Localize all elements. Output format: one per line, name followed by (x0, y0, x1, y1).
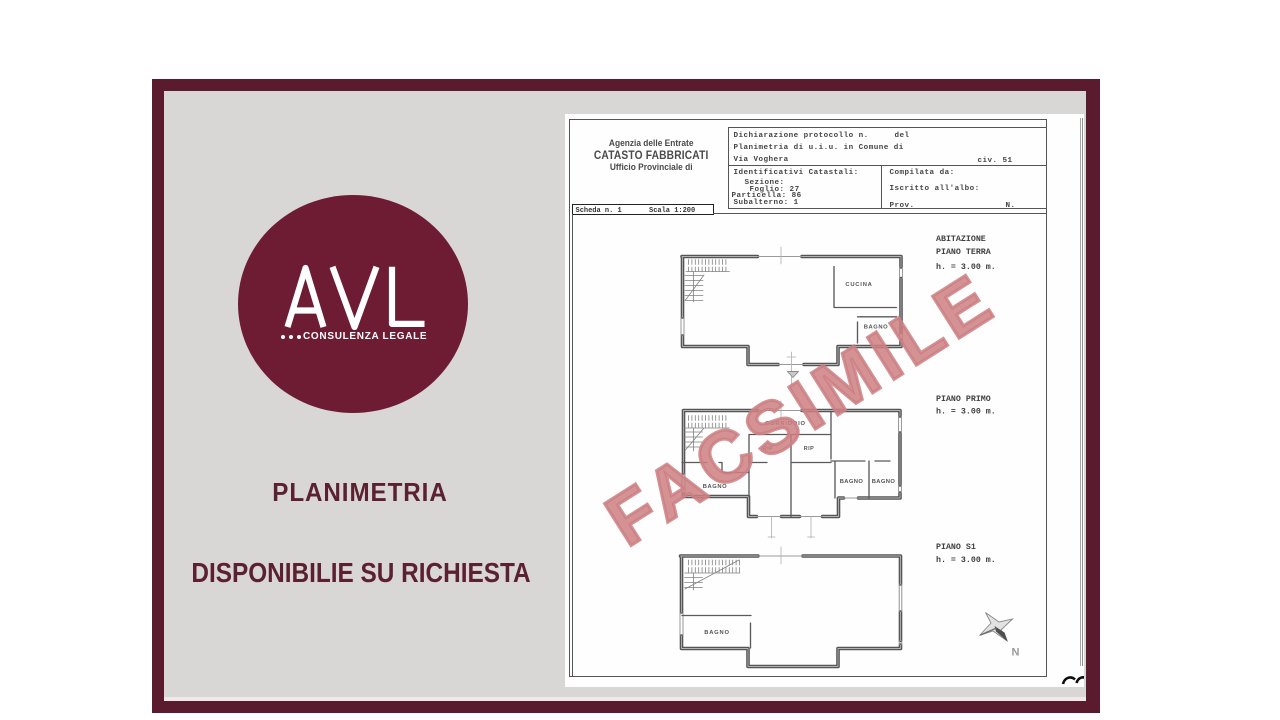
svg-text:CUCINA: CUCINA (845, 282, 872, 288)
svg-text:PIANO S1: PIANO S1 (936, 543, 976, 552)
svg-text:BAGNO: BAGNO (704, 630, 730, 636)
svg-text:PIANO TERRA: PIANO TERRA (936, 248, 991, 257)
svg-text:N: N (1012, 647, 1020, 659)
svg-text:BAGNO: BAGNO (840, 479, 864, 485)
svg-text:ABITAZIONE: ABITAZIONE (936, 235, 986, 244)
svg-text:PIANO PRIMO: PIANO PRIMO (936, 395, 991, 404)
svg-text:h. = 3.00 m.: h. = 3.00 m. (936, 555, 996, 565)
svg-text:h. = 3.00 m.: h. = 3.00 m. (936, 407, 996, 417)
svg-text:BAGNO: BAGNO (872, 479, 896, 485)
